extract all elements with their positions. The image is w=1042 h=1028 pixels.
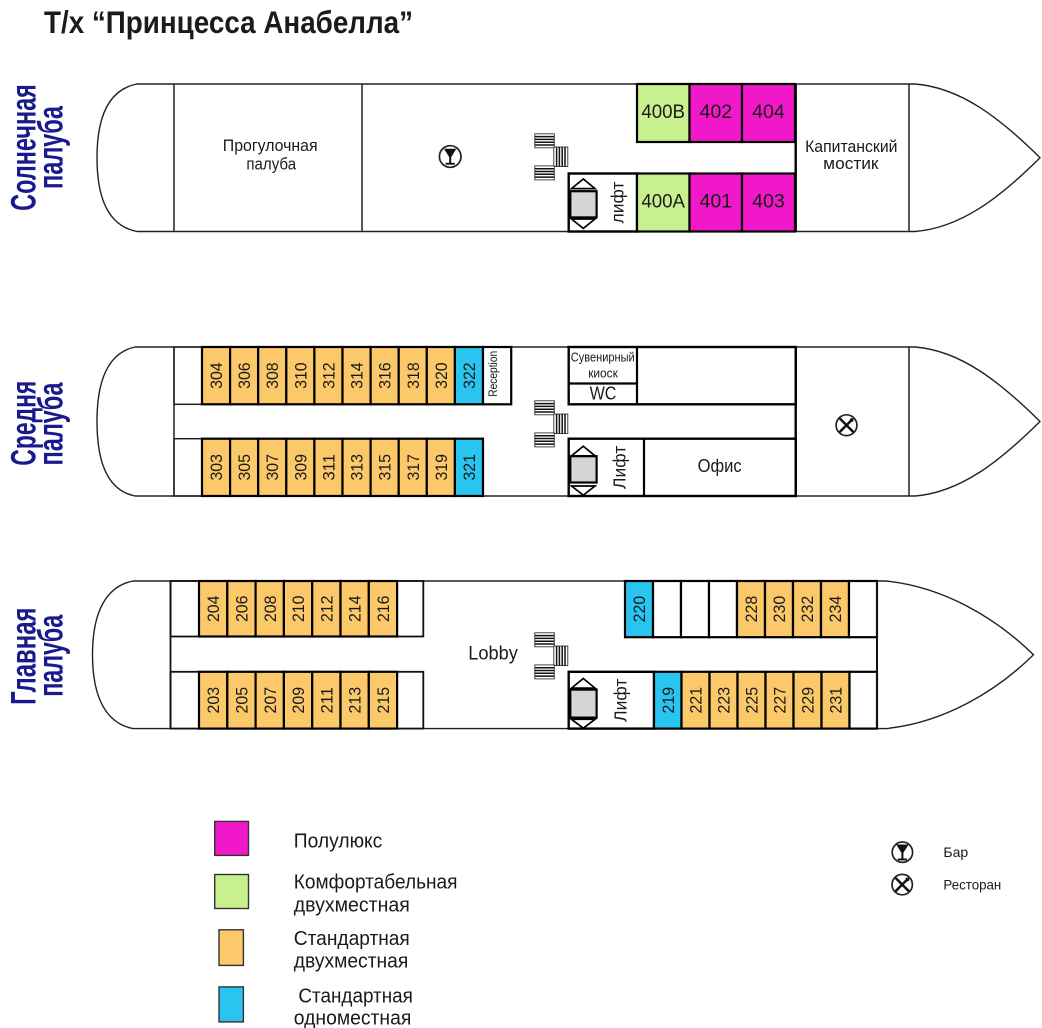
svg-text:киоск: киоск: [588, 366, 618, 381]
svg-text:палуба: палуба: [32, 106, 71, 189]
svg-text:210: 210: [289, 596, 308, 623]
svg-text:213: 213: [346, 687, 365, 714]
svg-text:317: 317: [404, 454, 423, 481]
svg-text:308: 308: [263, 362, 282, 389]
svg-text:305: 305: [235, 454, 254, 481]
svg-text:318: 318: [404, 362, 423, 389]
svg-text:319: 319: [432, 454, 451, 481]
svg-text:палуба: палуба: [32, 382, 71, 465]
svg-text:Прогулочная: Прогулочная: [223, 137, 318, 155]
svg-text:207: 207: [261, 687, 280, 714]
svg-text:Т/х “Принцесса Анабелла”: Т/х “Принцесса Анабелла”: [44, 4, 413, 40]
svg-text:209: 209: [289, 687, 308, 714]
svg-text:315: 315: [376, 454, 395, 481]
svg-text:Лифт: Лифт: [610, 446, 630, 489]
svg-text:311: 311: [319, 454, 338, 481]
svg-text:Полулюкс: Полулюкс: [294, 831, 383, 853]
svg-text:214: 214: [346, 596, 365, 623]
svg-text:WC: WC: [590, 382, 617, 403]
svg-text:307: 307: [263, 454, 282, 481]
svg-text:208: 208: [261, 596, 280, 623]
svg-text:Комфортабельная: Комфортабельная: [294, 871, 458, 893]
svg-text:206: 206: [233, 596, 252, 623]
svg-text:Лифт: Лифт: [611, 679, 631, 722]
svg-text:227: 227: [771, 687, 790, 714]
svg-text:400A: 400A: [641, 190, 686, 212]
svg-text:309: 309: [291, 454, 310, 481]
svg-text:400B: 400B: [641, 101, 685, 123]
svg-text:215: 215: [374, 687, 393, 714]
svg-text:двухместная: двухместная: [294, 894, 410, 916]
svg-text:Офис: Офис: [698, 455, 742, 476]
svg-text:216: 216: [374, 596, 393, 623]
svg-text:321: 321: [460, 454, 479, 481]
svg-text:211: 211: [317, 687, 336, 714]
svg-text:230: 230: [770, 596, 789, 623]
svg-text:304: 304: [207, 362, 226, 389]
svg-text:234: 234: [826, 596, 845, 623]
svg-text:232: 232: [798, 596, 817, 623]
svg-text:225: 225: [743, 687, 762, 714]
svg-text:223: 223: [715, 687, 734, 714]
svg-text:Стандартная: Стандартная: [298, 985, 413, 1007]
svg-text:Стандартная: Стандартная: [294, 928, 410, 950]
svg-text:306: 306: [235, 362, 254, 389]
svg-text:401: 401: [699, 190, 732, 212]
svg-text:одноместная: одноместная: [294, 1007, 412, 1028]
svg-text:316: 316: [376, 362, 395, 389]
svg-text:231: 231: [827, 687, 846, 714]
svg-text:212: 212: [317, 596, 336, 623]
svg-text:404: 404: [752, 101, 785, 123]
svg-text:Бар: Бар: [943, 844, 968, 860]
svg-text:205: 205: [233, 687, 252, 714]
svg-text:310: 310: [291, 362, 310, 389]
svg-text:мостик: мостик: [823, 155, 879, 173]
svg-text:Reception: Reception: [488, 351, 500, 397]
svg-text:220: 220: [630, 596, 649, 623]
svg-text:двухместная: двухместная: [294, 951, 409, 973]
svg-text:Сувенирный: Сувенирный: [571, 350, 635, 365]
svg-text:314: 314: [348, 362, 367, 389]
svg-text:Ресторан: Ресторан: [943, 877, 1001, 893]
svg-text:палуба: палуба: [32, 615, 71, 697]
svg-text:303: 303: [207, 454, 226, 481]
svg-text:203: 203: [204, 687, 223, 714]
svg-text:Капитанский: Капитанский: [805, 138, 897, 156]
svg-text:лифт: лифт: [608, 181, 628, 223]
svg-text:221: 221: [687, 687, 706, 714]
svg-text:палуба: палуба: [246, 156, 296, 174]
svg-text:312: 312: [319, 362, 338, 389]
svg-text:313: 313: [348, 454, 367, 481]
svg-text:Lobby: Lobby: [468, 644, 518, 665]
svg-text:204: 204: [204, 596, 223, 623]
svg-text:402: 402: [699, 101, 732, 123]
svg-text:403: 403: [752, 190, 785, 212]
svg-text:229: 229: [799, 687, 818, 714]
svg-text:322: 322: [460, 362, 479, 389]
svg-text:320: 320: [432, 362, 451, 389]
svg-text:228: 228: [742, 596, 761, 623]
svg-text:219: 219: [659, 687, 678, 714]
